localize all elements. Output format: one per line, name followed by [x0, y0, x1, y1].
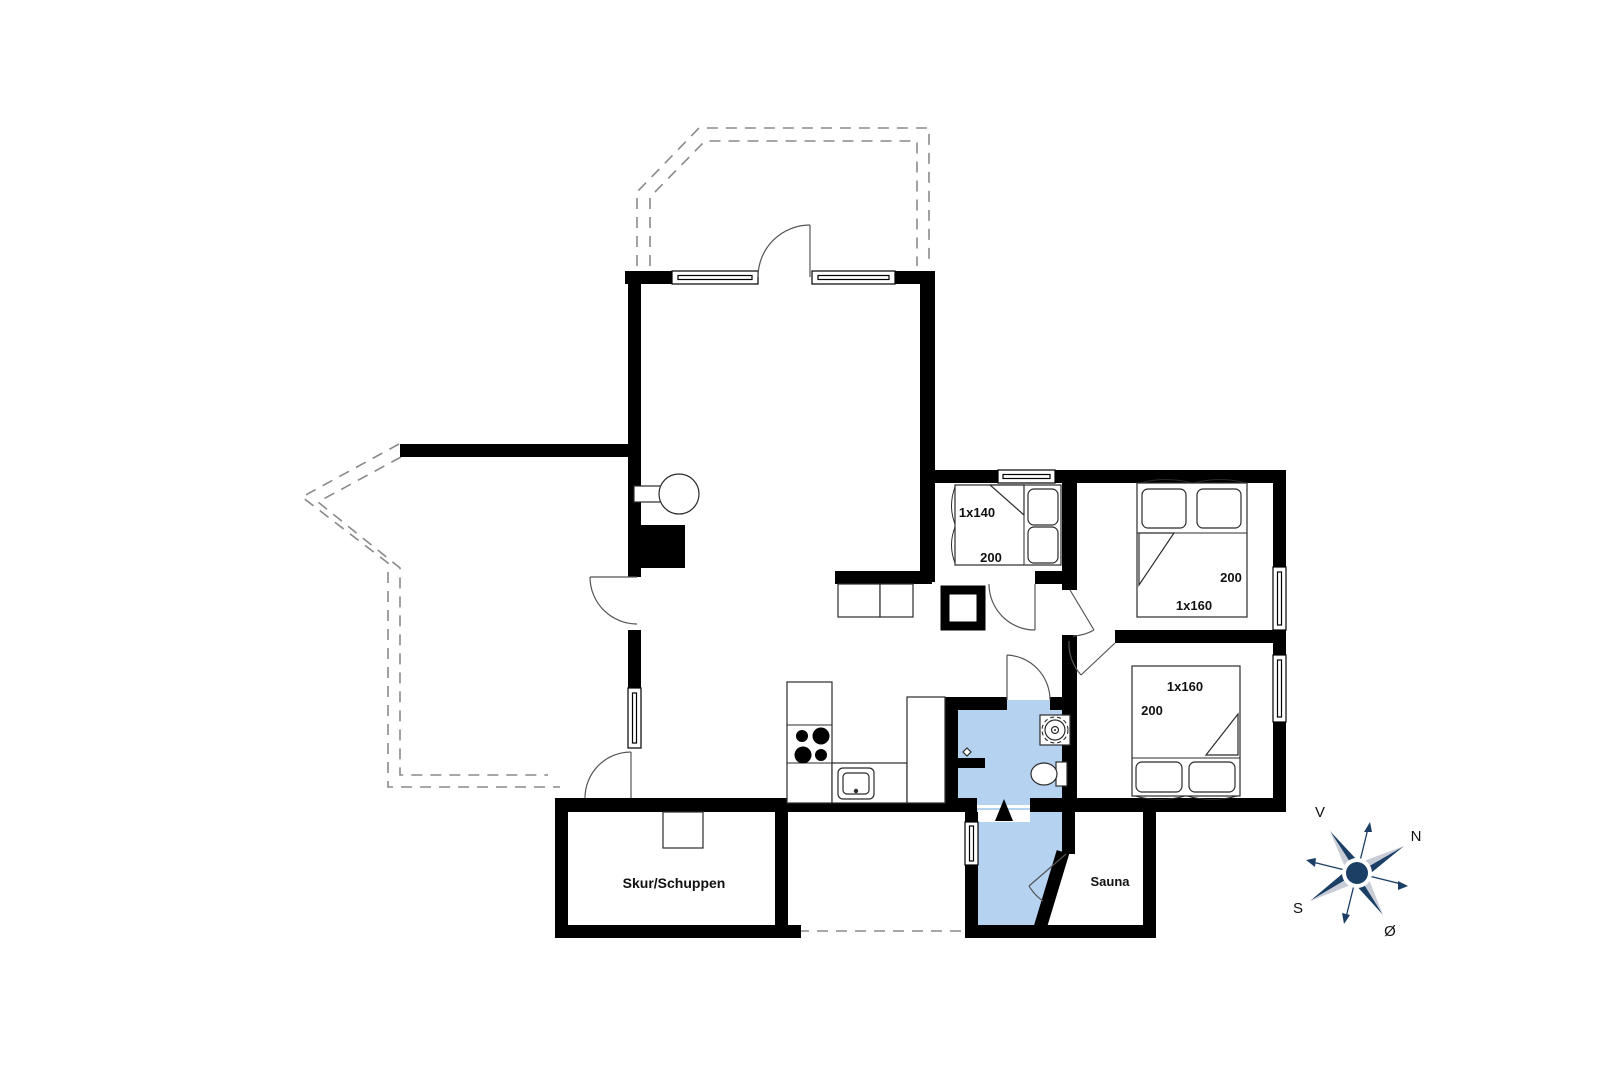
- shower: [1040, 715, 1070, 745]
- window-bedroom-north-east: [1273, 567, 1286, 630]
- compass-rose: V N S Ø: [1293, 804, 1421, 940]
- bathroom-stub-wall: [945, 758, 985, 768]
- compass-letter-south: S: [1293, 900, 1303, 917]
- terrace-door-north: [758, 225, 810, 277]
- bed-small: [952, 485, 1062, 565]
- window-living-west: [628, 688, 641, 748]
- terrace-door-west-lower: [585, 752, 631, 798]
- left-terrace-inner: [318, 457, 548, 775]
- bedroom-small-door: [989, 584, 1035, 630]
- wardrobe: [838, 584, 913, 617]
- compass-letter-west: V: [1315, 804, 1325, 821]
- toilet: [1031, 762, 1067, 786]
- sauna-label: Sauna: [1090, 874, 1130, 889]
- bed-north-size-label: 1x160: [1176, 598, 1212, 613]
- left-terrace-outer: [302, 444, 560, 787]
- chimney: [641, 525, 685, 568]
- window-entry-west: [965, 822, 978, 865]
- compass-letter-east: Ø: [1384, 923, 1396, 940]
- bed-north-length-label: 200: [1220, 570, 1242, 585]
- wood-stove: [634, 474, 699, 568]
- top-terrace-outer: [637, 128, 929, 266]
- shed-fixture: [663, 812, 703, 848]
- window-bedroom-south-east: [1273, 655, 1286, 722]
- bed-south-length-label: 200: [1141, 703, 1163, 718]
- shed-label: Skur/Schuppen: [623, 875, 726, 891]
- kitchen-counter-right: [907, 697, 945, 803]
- window-living-top-left: [672, 271, 758, 284]
- bed-north: [1137, 480, 1247, 618]
- bed-south-size-label: 1x160: [1167, 679, 1203, 694]
- floor-plan-canvas: Skur/Schuppen Sauna 1x140 200 200 1x160 …: [0, 0, 1600, 1066]
- bed-small-size-label: 1x140: [959, 505, 995, 520]
- compass-core: [1346, 862, 1368, 884]
- window-bedroom-small: [998, 470, 1055, 483]
- kitchen-sink: [838, 768, 874, 799]
- top-terrace-inner: [650, 141, 917, 266]
- window-living-top-right: [812, 271, 895, 284]
- terrace-door-west-upper: [590, 577, 637, 624]
- bedroom-north-door: [1070, 590, 1094, 636]
- bathroom-door: [1007, 655, 1050, 700]
- hall-closet: [945, 590, 981, 626]
- floor-plan-page: Skur/Schuppen Sauna 1x140 200 200 1x160 …: [0, 0, 1600, 1066]
- compass-letter-north: N: [1411, 828, 1422, 845]
- bed-small-length-label: 200: [980, 550, 1002, 565]
